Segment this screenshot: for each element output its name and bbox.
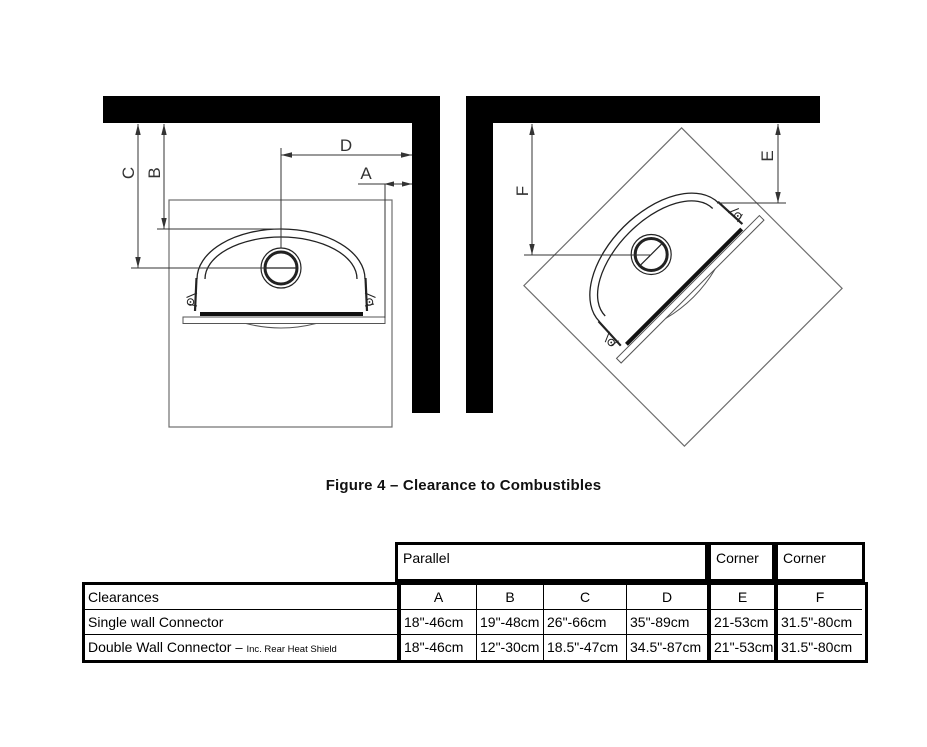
clearance-diagrams: C B D A F — [0, 0, 927, 530]
dimension-c — [131, 124, 266, 268]
corner-placement-diagram: F E — [466, 96, 842, 446]
column-header-c: C — [544, 585, 627, 610]
value-single-f: 31.5"-80cm — [775, 610, 862, 635]
column-header-a: A — [398, 585, 477, 610]
figure-caption: Figure 4 – Clearance to Combustibles — [0, 477, 927, 494]
dim-label-c: C — [119, 167, 138, 179]
column-header-b: B — [477, 585, 544, 610]
clearance-grid: Clearances A B C D E F Single wall Conne… — [82, 582, 868, 663]
dimension-f — [524, 124, 651, 255]
value-single-a: 18"-46cm — [398, 610, 477, 635]
top-wall — [103, 96, 440, 123]
value-double-e: 21"-53cm — [708, 635, 775, 660]
group-header-corner-f: Corner — [775, 542, 865, 582]
value-double-f: 31.5"-80cm — [775, 635, 862, 660]
value-double-d: 34.5"-87cm — [627, 635, 708, 660]
group-header-parallel: Parallel — [395, 542, 708, 582]
column-header-clearances: Clearances — [85, 585, 398, 610]
row-label-single-wall: Single wall Connector — [85, 610, 398, 635]
dim-label-a: A — [360, 164, 372, 183]
dim-label-e: E — [758, 150, 777, 161]
dim-label-b: B — [145, 167, 164, 178]
value-single-d: 35"-89cm — [627, 610, 708, 635]
top-wall — [466, 96, 820, 123]
dimension-labels-right: F E — [513, 150, 777, 196]
dimension-e — [717, 124, 786, 203]
row-label-double-wall: Double Wall Connector – Inc. Rear Heat S… — [85, 635, 398, 660]
column-header-d: D — [627, 585, 708, 610]
column-header-f: F — [775, 585, 862, 610]
dim-label-f: F — [513, 186, 532, 196]
row-label-double-wall-text: Double Wall Connector — [88, 639, 231, 655]
dimension-labels-left: C B D A — [119, 136, 372, 183]
right-wall — [412, 96, 440, 413]
clearance-table: Parallel Corner Corner Clearances A B C … — [82, 542, 868, 672]
dimension-lines-left — [131, 124, 412, 318]
value-single-c: 26"-66cm — [544, 610, 627, 635]
row-label-note: Inc. Rear Heat Shield — [246, 644, 336, 655]
page: { "caption": "Figure 4 – Clearance to Co… — [0, 0, 927, 747]
value-double-a: 18"-46cm — [398, 635, 477, 660]
column-header-e: E — [708, 585, 775, 610]
value-double-b: 12"-30cm — [477, 635, 544, 660]
row-label-dash: – — [235, 640, 242, 655]
parallel-placement-diagram: C B D A — [103, 96, 440, 427]
value-double-c: 18.5"-47cm — [544, 635, 627, 660]
value-single-b: 19"-48cm — [477, 610, 544, 635]
group-header-corner-e: Corner — [708, 542, 775, 582]
dim-label-d: D — [340, 136, 352, 155]
stove-on-hearth-rotated — [524, 128, 842, 446]
dimension-b — [157, 124, 280, 229]
left-wall — [466, 96, 493, 413]
value-single-e: 21-53cm — [708, 610, 775, 635]
